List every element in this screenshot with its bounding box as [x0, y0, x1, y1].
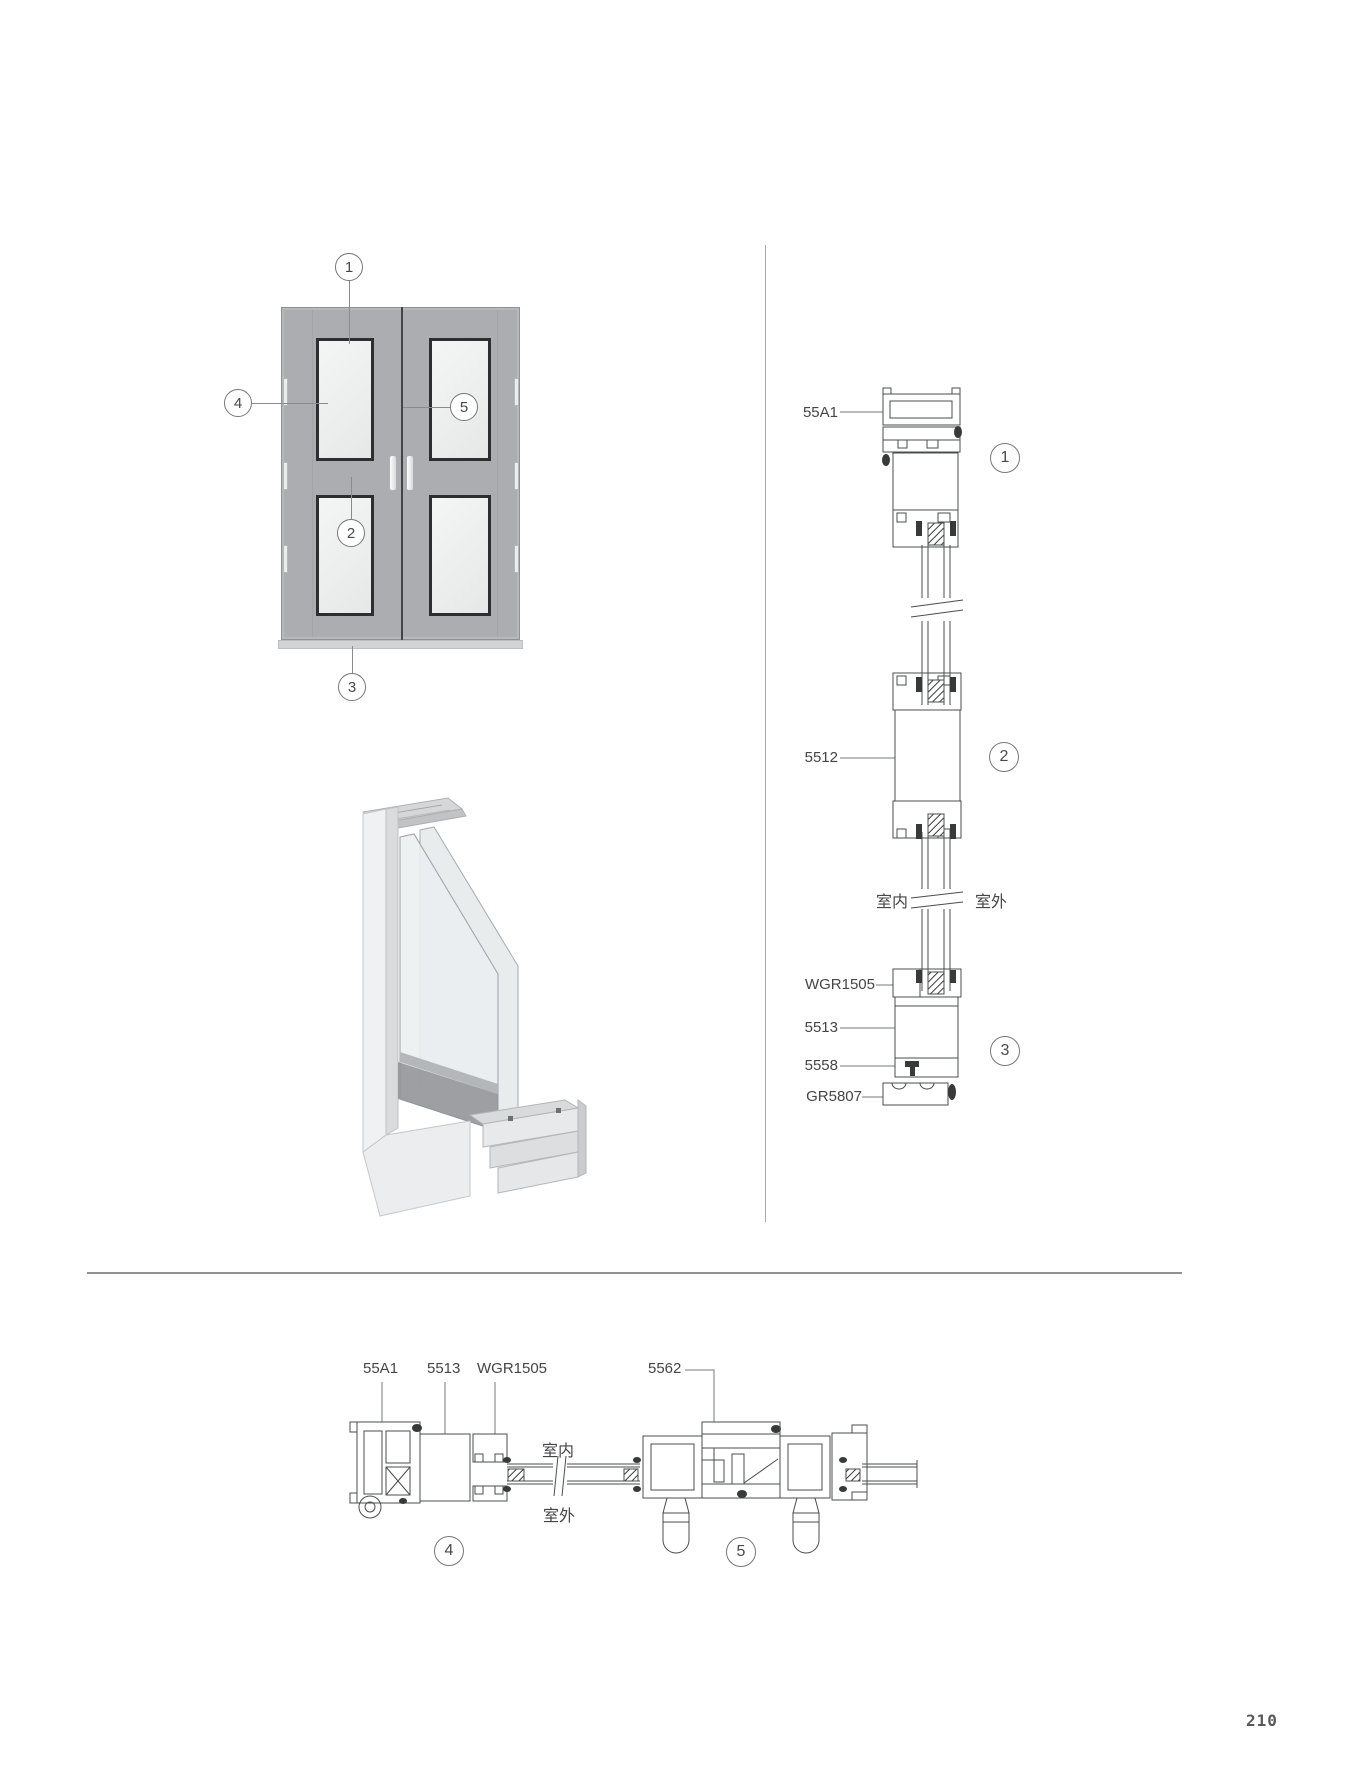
vcallout-1-label: 1 — [1001, 449, 1010, 467]
glass-panel-left-upper — [316, 338, 374, 461]
hcallout-4-label: 4 — [445, 1542, 454, 1560]
callout-2: 2 — [337, 519, 365, 547]
vlabel-5512: 5512 — [780, 749, 838, 766]
glass-spacer-hatch — [624, 1469, 638, 1481]
vertical-divider — [765, 245, 766, 1222]
vlabel-gr5807: GR5807 — [780, 1088, 862, 1105]
threshold-gr5807 — [883, 1083, 956, 1105]
hcallout-5: 5 — [726, 1537, 756, 1567]
iso-3d-render — [320, 790, 600, 1230]
frame-box-right — [832, 1425, 867, 1500]
vlabel-wgr1505: WGR1505 — [780, 976, 875, 993]
callout-5: 5 — [450, 393, 478, 421]
glass-panel-right-lower — [429, 495, 491, 616]
callout-2-label: 2 — [347, 525, 355, 542]
hcallout-5-label: 5 — [737, 1543, 746, 1561]
sill-detail-dot — [508, 1116, 513, 1121]
leader-callout-3 — [352, 646, 353, 673]
frame-head-profile-55a1 — [883, 388, 960, 425]
callout-4-label: 4 — [234, 395, 242, 412]
door-handle-left — [389, 455, 397, 491]
door-handle-right — [406, 455, 414, 491]
hlabel-outdoor: 室外 — [543, 1502, 575, 1526]
page-number: 210 — [1246, 1711, 1278, 1730]
glazing-adapter-wgr1505 — [473, 1434, 507, 1501]
glass-panel-left-lower — [316, 495, 374, 616]
horizontal-divider — [87, 1272, 1182, 1274]
door-handle-left-section — [663, 1498, 689, 1553]
sash-bottom-profile-5513 — [895, 1006, 958, 1058]
vcallout-3: 3 — [990, 1036, 1020, 1066]
hinge-right-mid — [514, 462, 519, 490]
vlabel-55a1: 55A1 — [780, 404, 838, 421]
callout-3-label: 3 — [348, 679, 356, 696]
leader-callout-4 — [252, 403, 328, 404]
horizontal-section-drawing — [340, 1355, 940, 1570]
meeting-stile-gap — [401, 307, 403, 640]
meeting-stile-left — [643, 1436, 702, 1498]
jamb-front-face — [363, 809, 386, 1152]
callout-3: 3 — [338, 673, 366, 701]
callout-1: 1 — [335, 253, 363, 281]
leaf-joint-left — [312, 310, 313, 637]
leaf-joint-right — [497, 310, 498, 637]
catalog-page: 1 2 3 4 5 — [0, 0, 1358, 1772]
jamb-side-face — [386, 807, 398, 1135]
hlabel-wgr1505: WGR1505 — [477, 1360, 547, 1377]
vcallout-1: 1 — [990, 443, 1020, 473]
hlabel-indoor: 室内 — [542, 1437, 574, 1461]
hcallout-4: 4 — [434, 1536, 464, 1566]
leader-callout-1 — [349, 281, 350, 344]
hinge-left-bottom — [283, 545, 288, 573]
hinge-left-top — [283, 378, 288, 406]
callout-1-label: 1 — [345, 259, 353, 276]
hinge-right-bottom — [514, 545, 519, 573]
leader-lines — [382, 1370, 714, 1434]
glazing-pocket-top — [893, 510, 958, 547]
sash-upper-chamber — [893, 453, 958, 510]
sill-end-cap — [578, 1100, 586, 1177]
glass-break-symbol-indoor-outdoor — [911, 892, 963, 908]
subsill-5558 — [895, 1058, 958, 1077]
vcallout-3-label: 3 — [1001, 1042, 1010, 1060]
stile-profile-5513 — [420, 1434, 470, 1501]
glass-spacer-hatch — [846, 1469, 860, 1481]
callout-5-label: 5 — [460, 399, 468, 416]
hinge-left-mid — [283, 462, 288, 490]
hlabel-5562: 5562 — [648, 1360, 681, 1377]
hlabel-5513: 5513 — [427, 1360, 460, 1377]
glass-break-symbol — [554, 1456, 566, 1496]
vcallout-2-label: 2 — [1000, 748, 1009, 766]
callout-4: 4 — [224, 389, 252, 417]
leader-lines — [840, 412, 895, 1097]
vlabel-5558: 5558 — [780, 1057, 838, 1074]
vlabel-5513: 5513 — [780, 1019, 838, 1036]
door-handle-right-section — [793, 1498, 819, 1553]
meeting-stile-assembly — [643, 1422, 867, 1553]
glass-break-symbol-upper — [911, 600, 963, 617]
vlabel-indoor: 室内 — [876, 888, 908, 912]
sash-top-profile — [882, 426, 962, 466]
sill-detail-dot — [556, 1108, 561, 1113]
jamb-profile-55a1 — [350, 1422, 422, 1518]
vcallout-2: 2 — [989, 742, 1019, 772]
mid-rail-profile-5512 — [893, 673, 961, 839]
hlabel-55a1: 55A1 — [363, 1360, 398, 1377]
leader-callout-2 — [351, 477, 352, 519]
leader-callout-5 — [403, 407, 450, 408]
hinge-right-top — [514, 378, 519, 406]
glass-spacer-hatch — [508, 1469, 524, 1481]
vlabel-outdoor: 室外 — [975, 888, 1007, 912]
door-sill — [278, 640, 523, 649]
